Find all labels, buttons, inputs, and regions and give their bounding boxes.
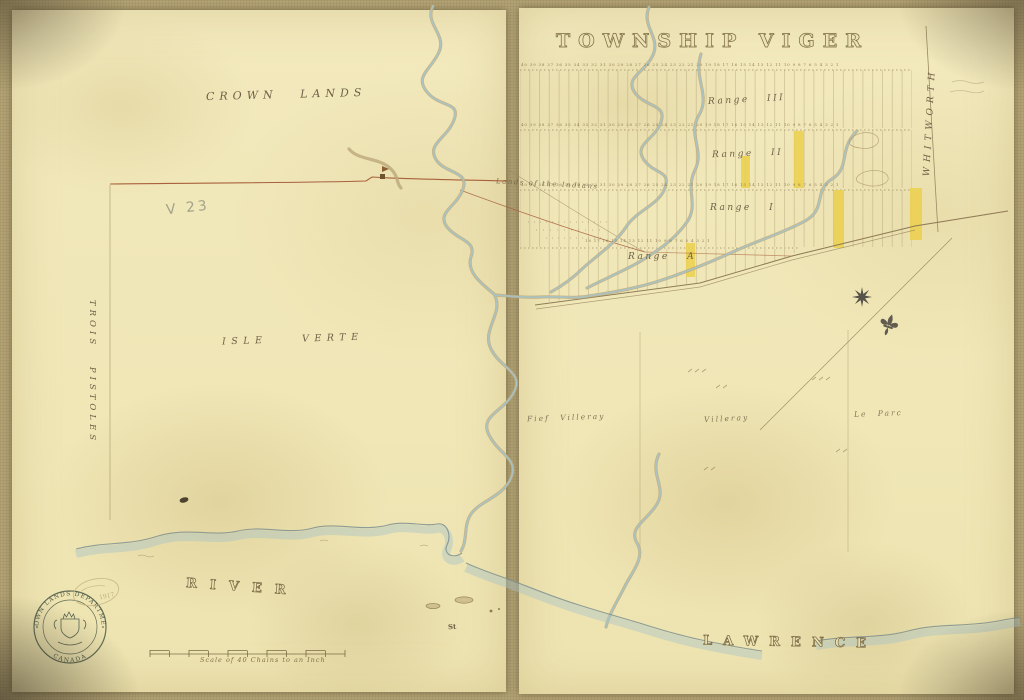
label-le-parc: Le Parc <box>854 408 903 419</box>
map-canvas: CROWN LANDS DEPARTMENT CANADA 1917 TOWNS… <box>0 0 1024 700</box>
scale-bar-label: Scale of 40 Chains to an Inch <box>200 656 326 664</box>
stamp-seal: CROWN LANDS DEPARTMENT CANADA <box>33 590 106 664</box>
fleur-de-lis-icon <box>877 312 901 338</box>
stamp-arc-top-text: CROWN LANDS DEPARTMENT <box>33 590 106 629</box>
label-st-abbrev: St <box>448 622 457 631</box>
label-lawrence: LAWRENCE <box>703 633 877 651</box>
compass-star-icon <box>848 283 876 311</box>
svg-text:CROWN LANDS DEPARTMENT: CROWN LANDS DEPARTMENT <box>33 590 106 629</box>
st-lawrence-shore <box>76 496 1020 656</box>
township-grid <box>520 26 938 303</box>
lot-numbers-row-low: 40 39 38 37 36 35 34 33 32 31 30 29 28 2… <box>521 182 913 187</box>
lot-numbers-row-range-a: 18 17 16 15 14 13 12 11 10 9 8 7 6 5 4 3… <box>585 238 785 243</box>
embossed-stamp-year: 1917 <box>99 591 116 601</box>
label-range-a: Range A <box>628 252 696 262</box>
map-artwork: CROWN LANDS DEPARTMENT CANADA 1917 <box>0 0 1024 700</box>
lot-numbers-row-mid: 40 39 38 37 36 35 34 33 32 31 30 29 28 2… <box>521 122 913 127</box>
lot-numbers-row-top: 40 39 38 37 36 35 34 33 32 31 30 29 28 2… <box>521 62 913 67</box>
map-title: TOWNSHIP VIGER <box>556 30 869 52</box>
label-trois-pistoles: TROIS PISTOLES <box>87 300 97 444</box>
coat-of-arms-icon <box>54 612 86 645</box>
label-range-1: Range I <box>710 203 775 213</box>
